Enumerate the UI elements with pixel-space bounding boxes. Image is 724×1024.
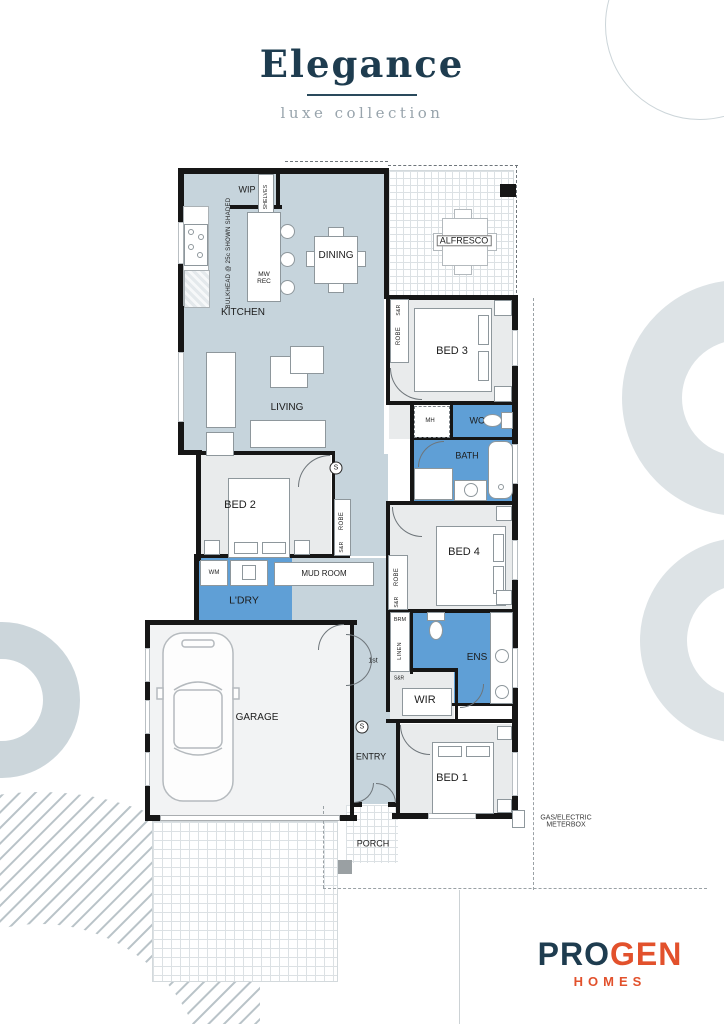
bathtub-icon	[488, 441, 513, 499]
shower-icon	[414, 468, 453, 500]
fridge-space	[184, 270, 210, 308]
title-divider	[307, 94, 417, 96]
label-wc: WC	[470, 416, 485, 425]
label-bed2: BED 2	[224, 500, 256, 512]
decor-ring-left	[0, 622, 80, 778]
label-bed3: BED 3	[436, 346, 468, 358]
label-linen: LINEN	[397, 642, 403, 660]
label-bed2-sr: S&R	[339, 541, 345, 552]
smoke-alarm-symbol: S	[356, 721, 369, 734]
label-bulkhead: BULKHEAD @ 25c SHOWN SHADED	[226, 198, 232, 309]
brand-homes: HOMES	[470, 974, 724, 989]
ens-toilet-icon	[427, 612, 445, 621]
label-bath: BATH	[455, 451, 478, 460]
porch-column	[338, 860, 352, 874]
page-title: Elegance	[0, 42, 724, 86]
brand-logo: PROGEN HOMES	[470, 938, 724, 989]
label-ldry: L'DRY	[229, 595, 259, 606]
label-wir-sr: S&R	[394, 676, 404, 681]
label-bed4-sr: S&R	[394, 596, 400, 607]
label-dining: DINING	[319, 251, 354, 262]
label-ens: ENS	[467, 653, 488, 664]
brand-gen: GEN	[610, 936, 682, 972]
decor-ring-right-large	[622, 280, 724, 516]
sofa-icon	[206, 352, 236, 428]
label-brm: BRM	[394, 618, 406, 624]
label-mud-room: MUD ROOM	[301, 570, 346, 578]
sofa-icon	[250, 420, 326, 448]
label-bed4: BED 4	[448, 547, 480, 559]
meterbox-icon	[512, 810, 525, 828]
collection-subtitle: luxe collection	[0, 104, 724, 122]
wc-toilet-icon	[501, 412, 513, 429]
garage-door	[160, 815, 340, 821]
label-porch: PORCH	[357, 839, 390, 848]
label-1st: 1st	[368, 657, 377, 664]
coffee-table	[290, 346, 324, 374]
island-bench	[247, 212, 281, 302]
label-bed3-robe: ROBE	[396, 327, 402, 345]
stool-icon	[280, 280, 295, 295]
smoke-alarm-symbol: S	[330, 462, 343, 475]
floorplan-page: Elegance luxe collection	[0, 0, 724, 1024]
car-icon	[156, 628, 240, 806]
label-bed2-robe: ROBE	[339, 512, 345, 530]
label-bed4-robe: ROBE	[394, 568, 400, 586]
label-wir: WIR	[414, 695, 435, 707]
label-entry: ENTRY	[356, 752, 386, 761]
label-alfresco: ALFRESCO	[437, 235, 492, 246]
label-bed3-sr: S&R	[396, 304, 402, 315]
stool-icon	[280, 224, 295, 239]
label-living: LIVING	[271, 403, 304, 414]
label-wip: WIP	[239, 185, 256, 194]
label-shelves: SHELVES	[263, 185, 269, 210]
brand-pro: PRO	[538, 936, 610, 972]
label-meterbox: GAS/ELECTRIC METERBOX	[540, 815, 591, 830]
label-wm: WM	[209, 570, 220, 576]
sofa-icon	[206, 432, 234, 456]
stool-icon	[280, 252, 295, 267]
decor-ring-right-small	[640, 538, 724, 743]
label-bed1: BED 1	[436, 773, 468, 785]
label-kitchen: KITCHEN	[221, 308, 265, 319]
label-garage: GARAGE	[236, 713, 279, 724]
label-mh: MH	[425, 418, 434, 424]
label-mw-rec: MW REC	[257, 272, 271, 286]
